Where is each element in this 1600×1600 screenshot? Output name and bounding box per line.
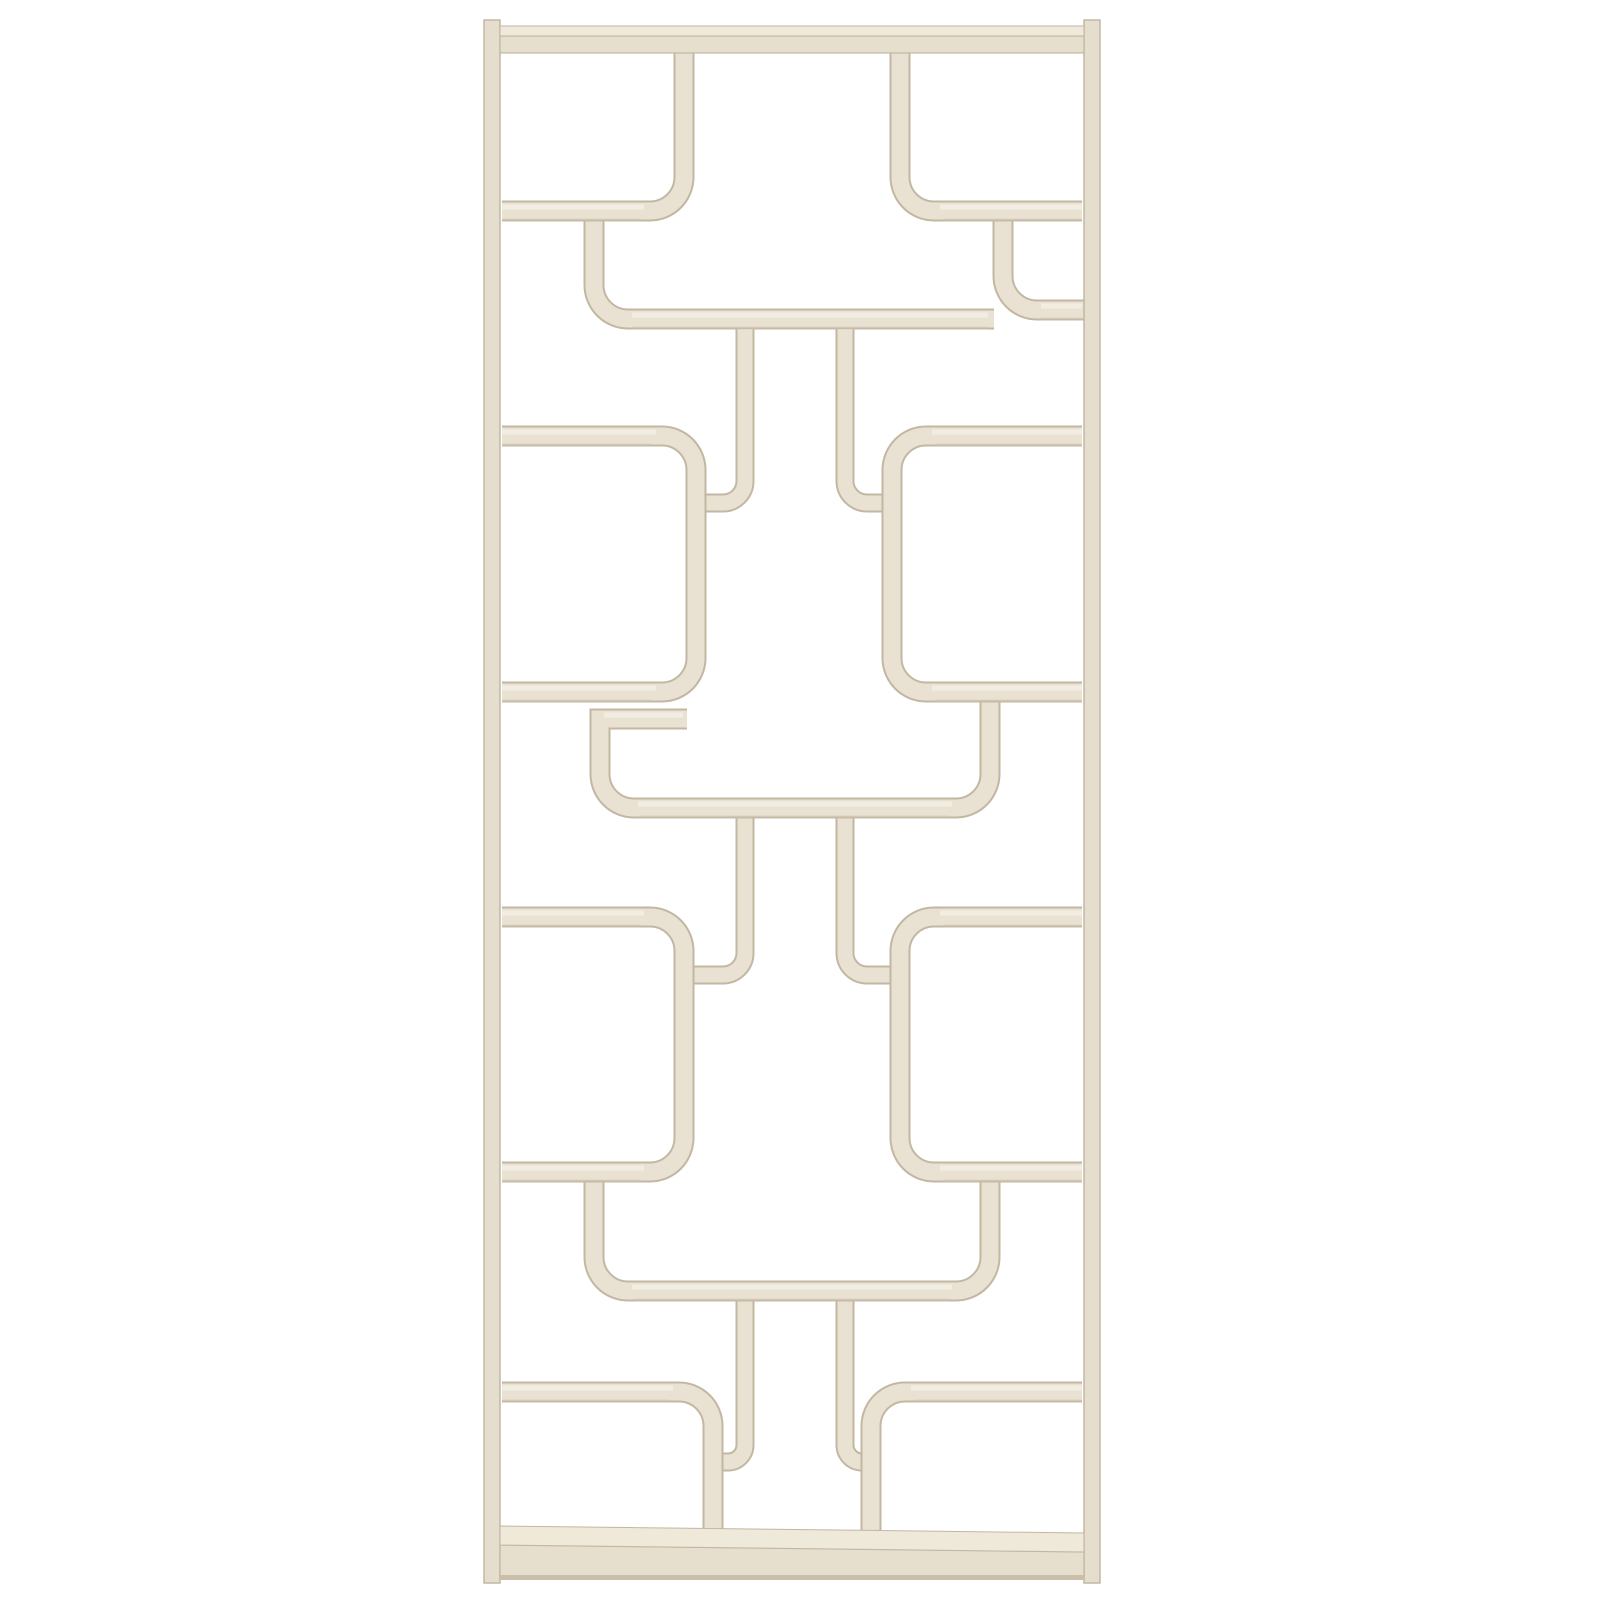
product-photo-canvas — [0, 0, 1600, 1600]
room-divider-photo — [0, 0, 1600, 1600]
frame-rail-left — [484, 20, 500, 1583]
bottom-bar-base — [500, 1575, 1084, 1580]
frame-rail-right — [1084, 20, 1100, 1583]
room-divider-svg — [0, 0, 1600, 1600]
top-bar-top-face — [500, 26, 1084, 36]
top-bar-front — [500, 36, 1084, 53]
